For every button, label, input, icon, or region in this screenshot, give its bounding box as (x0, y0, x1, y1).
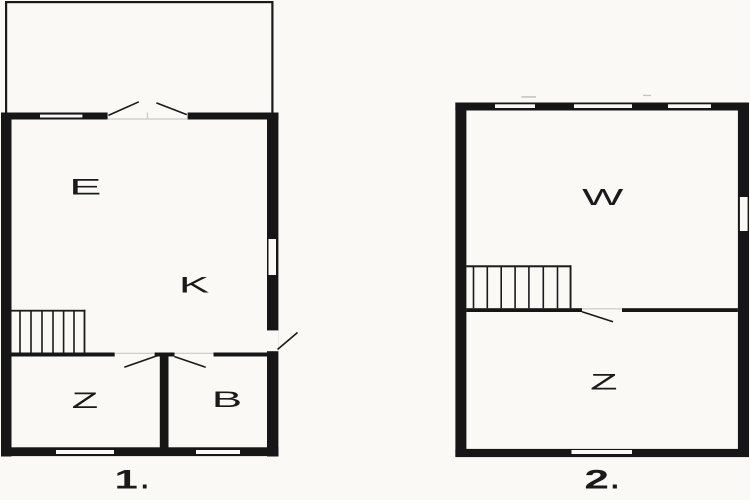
svg-text:Z: Z (72, 388, 99, 413)
svg-text:K: K (179, 272, 210, 297)
svg-text:2: 2 (584, 465, 609, 495)
svg-text:B: B (212, 387, 242, 412)
svg-text:.: . (611, 465, 619, 495)
svg-text:E: E (69, 175, 101, 200)
svg-text:W: W (582, 184, 624, 210)
svg-text:Z: Z (590, 370, 617, 395)
svg-text:1: 1 (115, 465, 138, 495)
svg-text:.: . (141, 465, 149, 495)
